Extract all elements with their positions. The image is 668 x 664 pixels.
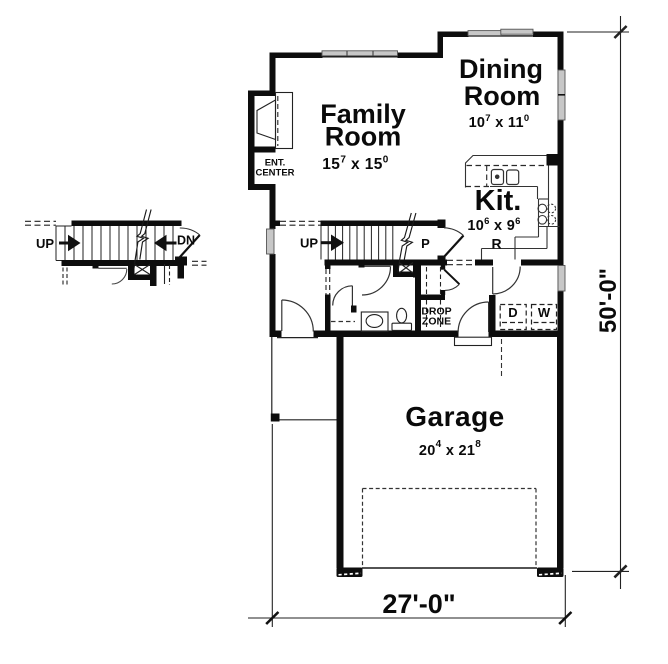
svg-text:P: P [421,236,430,251]
svg-text:DN: DN [177,234,195,248]
svg-text:W: W [538,305,551,320]
svg-text:ZONE: ZONE [422,316,451,328]
svg-text:27'-0": 27'-0" [382,589,455,619]
svg-text:Kit.: Kit. [475,185,522,217]
svg-text:Room: Room [464,81,541,111]
svg-text:204 x 218: 204 x 218 [419,439,481,459]
svg-text:UP: UP [300,236,318,251]
svg-text:D: D [508,305,517,320]
svg-text:Garage: Garage [405,401,505,432]
svg-text:UP: UP [36,236,54,251]
svg-text:106 x 96: 106 x 96 [467,216,520,234]
svg-text:R: R [491,236,501,252]
svg-text:Room: Room [325,122,402,152]
svg-text:Dining: Dining [459,54,543,84]
svg-text:CENTER: CENTER [255,168,294,179]
svg-text:157 x 150: 157 x 150 [322,155,389,174]
svg-text:107 x 110: 107 x 110 [469,113,530,131]
svg-text:50'-0": 50'-0" [595,268,622,333]
